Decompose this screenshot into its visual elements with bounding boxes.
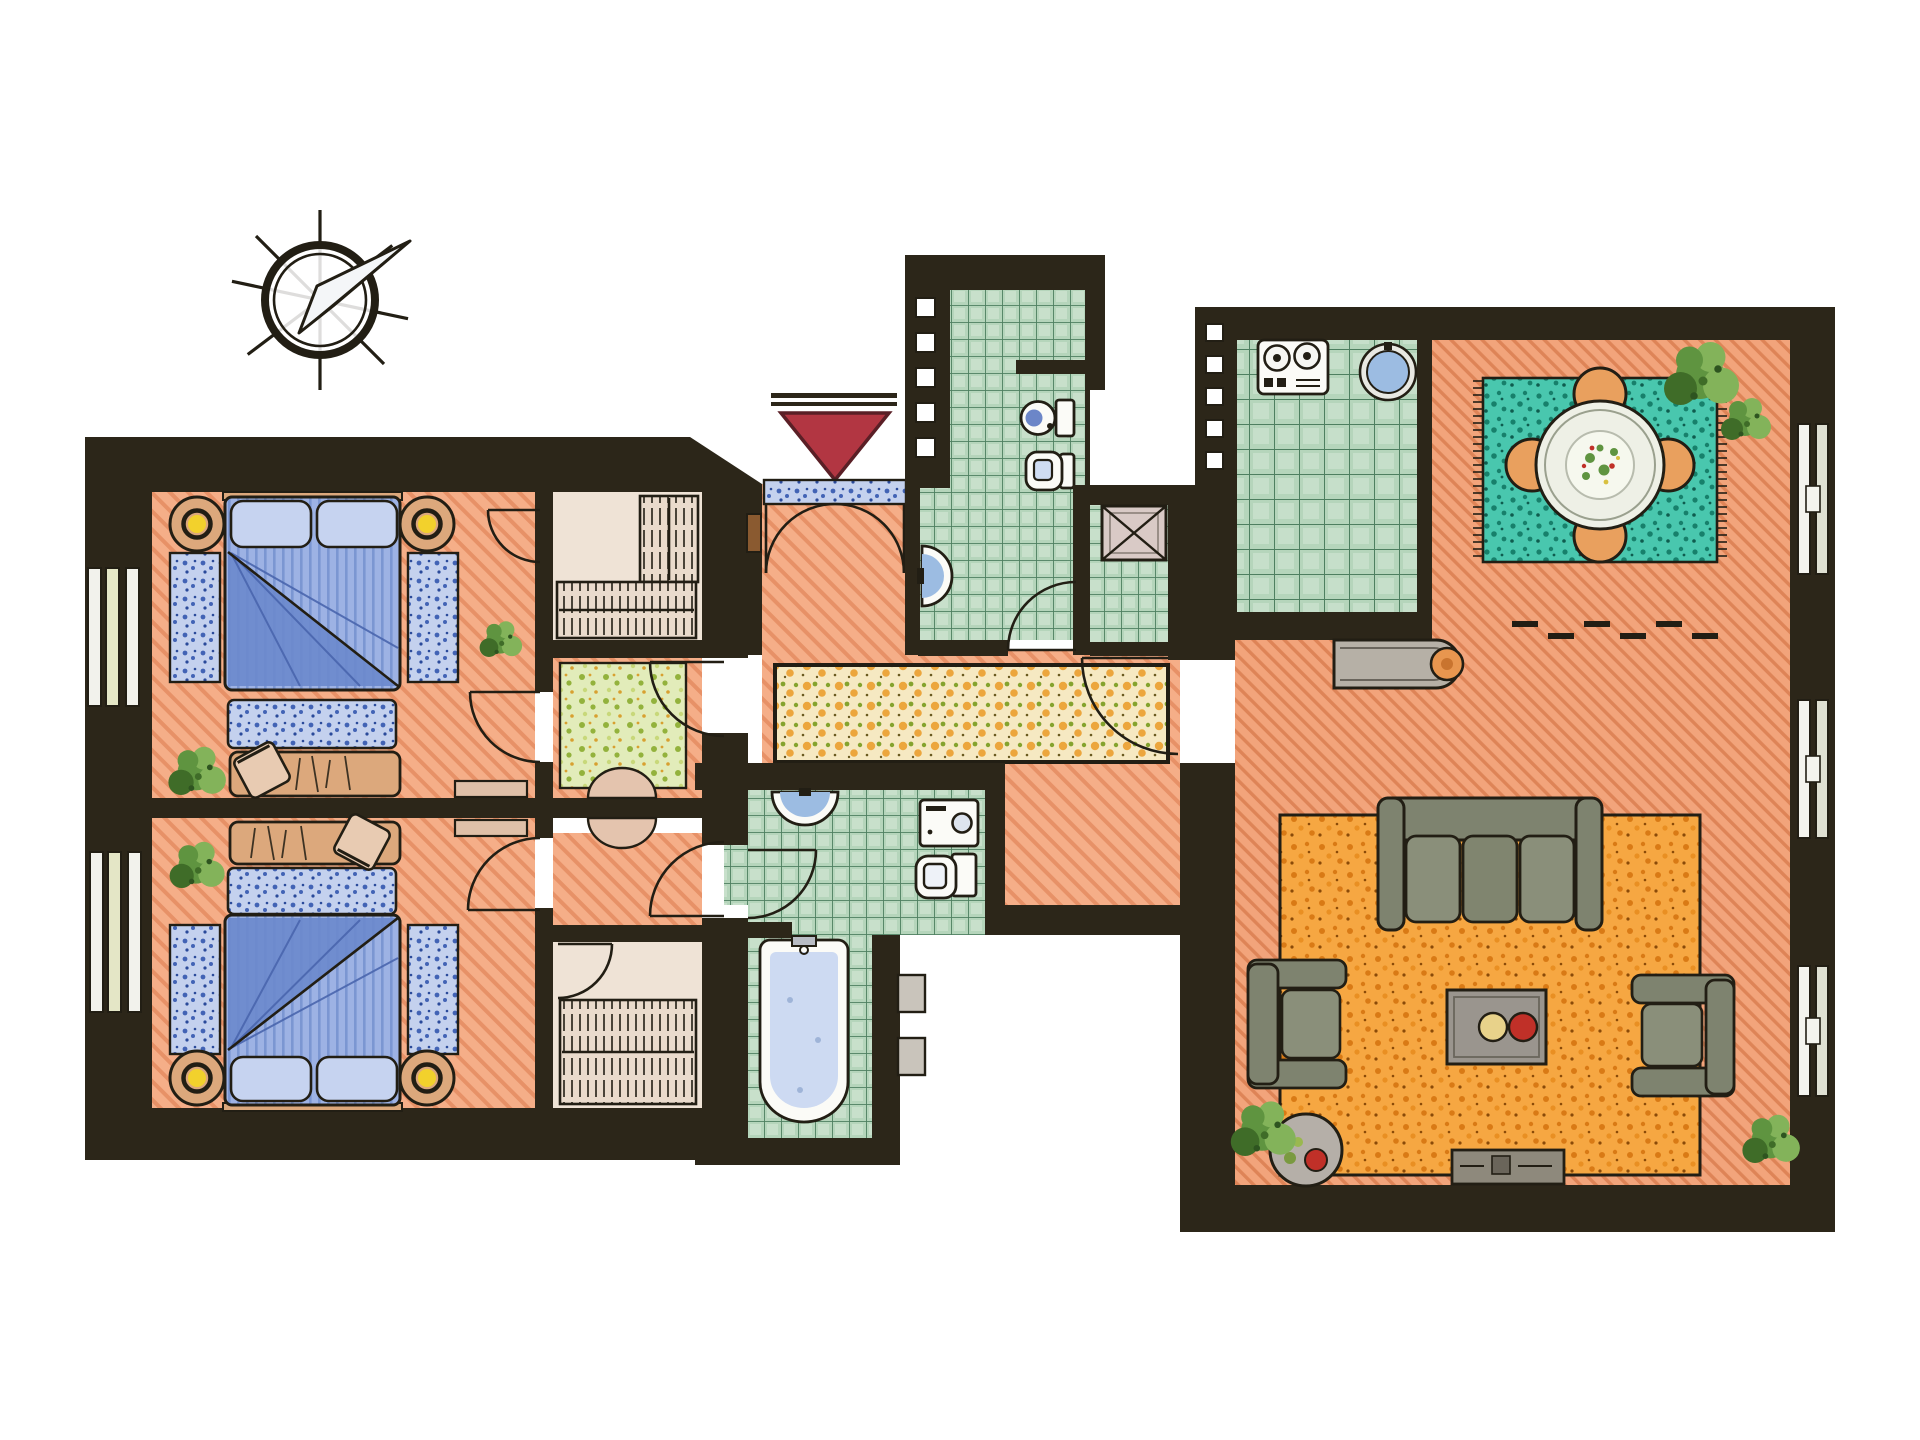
media-console [1452,1150,1564,1184]
rug-fringe [1473,380,1482,560]
radiator-left-2 [90,852,141,1012]
runner-rug [775,665,1168,762]
sofa-cushion [1520,836,1574,922]
console-table [455,820,527,836]
nightstand-lamp [170,497,224,551]
pillow [317,501,397,547]
hallway-niche-floor [1005,763,1180,908]
bidet-icon [1026,452,1074,490]
pillow [317,1057,397,1101]
bedside-rug-left [170,925,220,1054]
armchair-left [1248,960,1346,1088]
sideboard [1334,640,1463,688]
pillow [231,1057,311,1101]
dining-area [1432,340,1790,640]
sofa [1378,798,1602,930]
nightstand-lamp [400,497,454,551]
exterior-ledge-box [898,975,925,1012]
toilet-icon [1021,400,1074,436]
coffee-table [1447,990,1546,1064]
bathtub-icon [760,936,848,1122]
doormat [764,480,906,504]
pillow [231,501,311,547]
sofa-cushion [1463,836,1517,922]
compass-rose-icon [232,210,410,390]
entry-floor [762,484,905,655]
shaft-box [1102,506,1166,560]
armchair-right [1632,975,1734,1096]
bench-rug [228,868,396,914]
double-bed [223,492,402,690]
bedside-rug-right [408,553,458,682]
salad-platter [1566,431,1634,499]
nightstand-lamp [170,1051,224,1105]
floor-plan-canvas [0,0,1920,1440]
nightstand-lamp [400,1051,454,1105]
yellow-bowl [1479,1013,1507,1041]
shower-partition [1016,360,1085,374]
bathroom-top [905,255,1105,656]
stove-icon [1258,340,1328,394]
toilet-icon [916,854,976,898]
intercom-panel [747,514,761,552]
entrance-marker-icon [781,413,889,480]
bedroom-1 [152,492,535,800]
red-bowl [1305,1149,1327,1171]
console-table [455,781,527,797]
closet-1 [553,492,702,640]
entry-hall [747,393,906,655]
exterior-ledge-box [898,1038,925,1075]
radiator-left-1 [88,568,139,706]
rug-fringe [1718,380,1727,560]
kitchen-sink-icon [1360,342,1416,400]
bedroom-2 [152,812,535,1111]
sofa-cushion [1406,836,1460,922]
washing-machine-icon [920,800,978,846]
floor-plan-drawing [0,0,1920,1440]
bench-rug [228,700,396,748]
bedside-rug-left [170,553,220,682]
dining-table [1536,401,1664,529]
red-bowl [1509,1013,1537,1041]
double-bed [223,915,402,1111]
bedside-rug-right [408,925,458,1054]
closet-2 [553,942,702,1108]
